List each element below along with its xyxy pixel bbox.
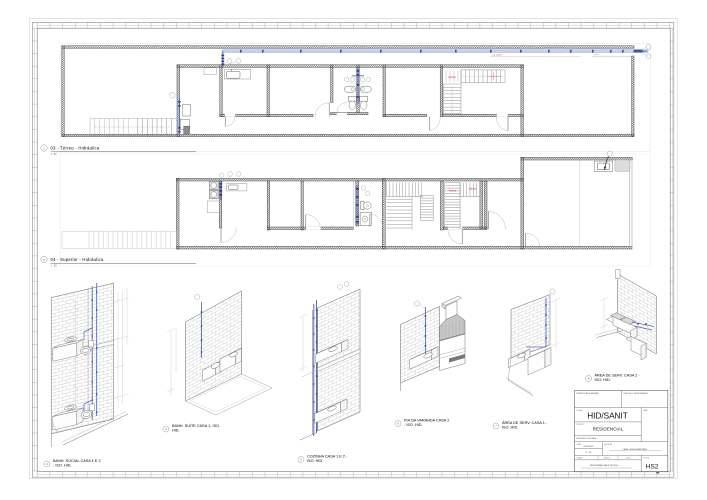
- svg-text:RESIDENCIAL: RESIDENCIAL: [593, 427, 624, 432]
- svg-text:COZINHA CASA 1 E 2 -: COZINHA CASA 1 E 2 -: [307, 454, 348, 458]
- svg-text:ISO. HID.: ISO. HID.: [307, 459, 323, 463]
- svg-text:BANH. SOCIAL CASA 1 E 2: BANH. SOCIAL CASA 1 E 2: [53, 459, 101, 463]
- svg-text:APROV.: APROV.: [604, 457, 611, 460]
- svg-text:ÁREA DE SERV. CASA 1 -: ÁREA DE SERV. CASA 1 -: [502, 421, 548, 425]
- svg-text:ÁREA DE SERV. CASA 2 -: ÁREA DE SERV. CASA 2 -: [595, 373, 641, 377]
- svg-text:ISO. HID.: ISO. HID.: [502, 426, 518, 430]
- svg-text:CAME - HIDROSSANITÁRIO: CAME - HIDROSSANITÁRIO: [623, 448, 648, 451]
- svg-text:Acima: Acima: [449, 189, 457, 193]
- svg-text:HID.: HID.: [172, 429, 180, 433]
- svg-text:04 - Superior - Hidráulica: 04 - Superior - Hidráulica: [51, 257, 104, 262]
- svg-text:RESPONSABILIDADE TÉCNICA: RESPONSABILIDADE TÉCNICA: [590, 464, 619, 467]
- svg-text:1 : 50: 1 : 50: [51, 265, 58, 268]
- svg-text:ISO. HID.: ISO. HID.: [595, 378, 611, 382]
- svg-text:ESCALAS: ESCALAS: [604, 443, 613, 446]
- svg-text:- ISO. HID.: - ISO. HID.: [404, 423, 423, 427]
- svg-text:Acima: Acima: [448, 75, 456, 79]
- svg-text:VISTO: VISTO: [626, 458, 632, 460]
- svg-text:PREFEITURA E ASSINAT.: PREFEITURA E ASSINAT.: [577, 392, 600, 395]
- svg-text:PROJETO: PROJETO: [577, 424, 586, 426]
- svg-text:FOLHA: FOLHA: [577, 409, 584, 412]
- svg-text:esg. 100mm: esg. 100mm: [492, 55, 502, 57]
- svg-text:portão: portão: [594, 53, 599, 56]
- svg-text:HID/SANIT: HID/SANIT: [587, 411, 628, 420]
- svg-text:DADOS DO RESPONSÁVEL: DADOS DO RESPONSÁVEL: [623, 392, 648, 395]
- svg-text:DESEN.: DESEN.: [577, 458, 584, 460]
- svg-text:1 : 50: 1 : 50: [586, 452, 592, 454]
- svg-text:PIA DA VARANDA CASA 2: PIA DA VARANDA CASA 2: [404, 418, 449, 422]
- svg-text:BANH. SUÍTE CASA 1- ISO.: BANH. SUÍTE CASA 1- ISO.: [172, 424, 220, 428]
- svg-text:03 - Térreo - Hidráulica: 03 - Térreo - Hidráulica: [51, 145, 100, 150]
- svg-text:FOLHA: FOLHA: [643, 457, 650, 460]
- svg-text:ENDEREÇO DA OBRA: ENDEREÇO DA OBRA: [577, 437, 597, 440]
- svg-text:HS2: HS2: [646, 464, 659, 471]
- svg-text:04/02/2021: 04/02/2021: [583, 446, 594, 448]
- svg-text:- ISO. HID.: - ISO. HID.: [53, 464, 72, 468]
- svg-text:Desce: Desce: [469, 187, 477, 191]
- svg-text:25mm - AGUA FRIA: 25mm - AGUA FRIA: [545, 46, 564, 49]
- svg-text:1 : 50: 1 : 50: [51, 153, 58, 156]
